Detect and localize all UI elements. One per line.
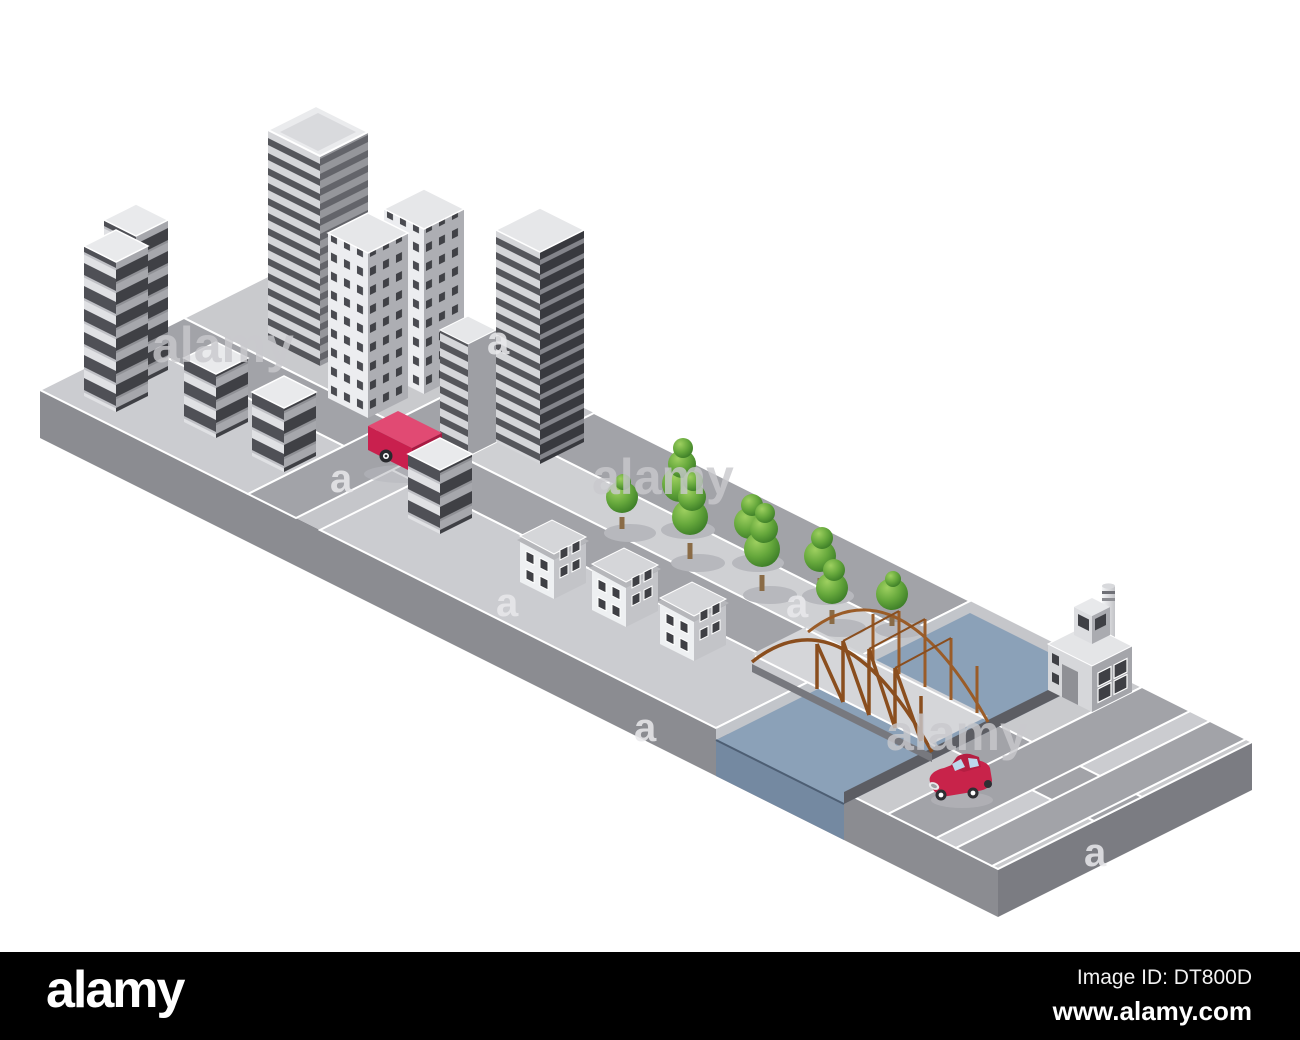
watermark-text: alamy <box>152 317 294 373</box>
watermark-letter: a <box>330 457 353 501</box>
watermark-letter: a <box>786 582 809 626</box>
low-stacked-building <box>408 438 472 534</box>
stock-image-page: alamy alamy alamy a a a a a a alamy Imag… <box>0 0 1300 1040</box>
watermark-letter: a <box>634 706 657 750</box>
footer-bar: alamy Image ID: DT800D www.alamy.com <box>0 952 1300 1040</box>
image-meta: Image ID: DT800D www.alamy.com <box>1053 966 1252 1027</box>
twin-office-tower <box>328 213 408 418</box>
alamy-url: www.alamy.com <box>1053 996 1252 1027</box>
factory <box>1048 583 1132 712</box>
factory-roof-cabin <box>1074 598 1110 644</box>
watermark-letter: a <box>487 319 510 363</box>
low-stacked-building <box>252 376 316 472</box>
city-illustration: alamy alamy alamy a a a a a a <box>0 0 1300 952</box>
alamy-logo: alamy <box>46 964 183 1016</box>
watermark-letter: a <box>1084 831 1107 875</box>
image-id: Image ID: DT800D <box>1053 966 1252 990</box>
watermark-text: alamy <box>886 705 1028 761</box>
watermark-text: alamy <box>592 449 734 505</box>
watermark-letter: a <box>496 581 519 625</box>
stacked-tower <box>84 230 148 412</box>
